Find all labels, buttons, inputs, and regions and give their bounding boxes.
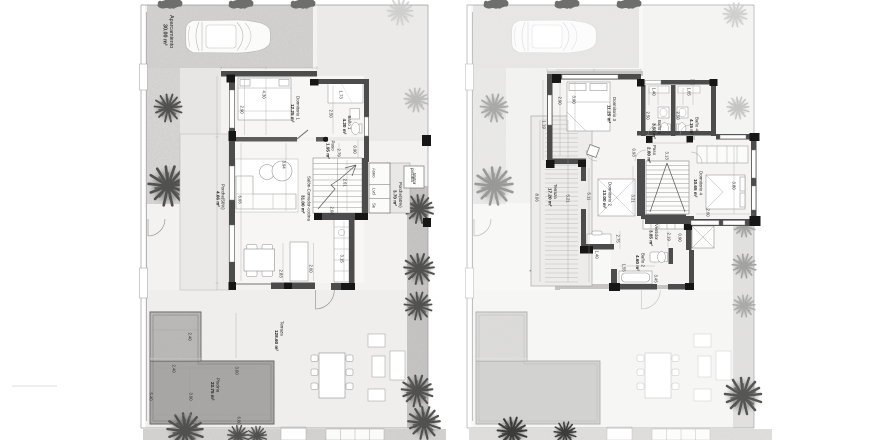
- svg-text:Baño 4: Baño 4: [695, 117, 700, 131]
- svg-text:0.90: 0.90: [352, 146, 357, 155]
- svg-text:2.50: 2.50: [645, 112, 650, 121]
- svg-text:Dormitorio 3: Dormitorio 3: [612, 97, 617, 121]
- svg-text:3.70 m²: 3.70 m²: [393, 190, 398, 206]
- svg-text:11.25 m²: 11.25 m²: [607, 105, 612, 124]
- svg-text:3.90: 3.90: [571, 96, 576, 105]
- svg-text:12.25 m²: 12.25 m²: [290, 104, 295, 123]
- svg-text:23.75 m²: 23.75 m²: [210, 382, 215, 401]
- svg-text:5.40: 5.40: [148, 393, 153, 402]
- svg-text:31.00 m²: 31.00 m²: [301, 195, 306, 214]
- svg-text:Se: Se: [372, 203, 377, 209]
- svg-text:30.00 m²: 30.00 m²: [162, 24, 168, 46]
- svg-text:3.94: 3.94: [281, 161, 286, 170]
- svg-text:2.40: 2.40: [187, 333, 192, 342]
- svg-text:4.60 m²: 4.60 m²: [635, 255, 640, 271]
- svg-text:6.66: 6.66: [237, 196, 242, 205]
- svg-text:4.66 m²: 4.66 m²: [216, 191, 221, 207]
- svg-text:Porche(50%): Porche(50%): [398, 182, 403, 208]
- svg-text:1.65: 1.65: [686, 88, 691, 97]
- svg-text:2.50: 2.50: [675, 112, 680, 121]
- svg-text:Dormitorio 1: Dormitorio 1: [296, 96, 301, 120]
- svg-text:3.50 m²: 3.50 m²: [652, 123, 657, 139]
- svg-text:3.80: 3.80: [731, 182, 736, 191]
- svg-text:Aseo: Aseo: [372, 168, 377, 178]
- svg-text:0.93: 0.93: [631, 149, 636, 158]
- svg-text:Aparcamiento: Aparcamiento: [168, 15, 174, 48]
- svg-text:2.90: 2.90: [239, 106, 244, 115]
- svg-text:2.60: 2.60: [308, 265, 313, 274]
- svg-text:2.08: 2.08: [329, 207, 334, 216]
- svg-text:2.90: 2.90: [557, 97, 562, 106]
- svg-text:3.13: 3.13: [664, 152, 669, 161]
- svg-text:4.15 m²: 4.15 m²: [689, 119, 694, 135]
- svg-text:3.15: 3.15: [339, 255, 344, 264]
- svg-text:0.90: 0.90: [677, 234, 682, 243]
- svg-text:3.85 m²: 3.85 m²: [649, 230, 654, 246]
- svg-text:Baño 3: Baño 3: [657, 120, 662, 134]
- svg-text:2.80 m²: 2.80 m²: [647, 147, 652, 163]
- svg-text:Terraza: Terraza: [553, 184, 558, 199]
- svg-text:3.00: 3.00: [234, 367, 239, 376]
- svg-text:Salón-Comedor-cocina: Salón-Comedor-cocina: [307, 176, 312, 221]
- svg-text:17.20 m²: 17.20 m²: [548, 188, 553, 207]
- svg-text:2.60: 2.60: [705, 209, 710, 218]
- svg-text:4.20 m²: 4.20 m²: [342, 119, 347, 135]
- svg-text:2.40: 2.40: [171, 365, 176, 374]
- svg-text:Lvd: Lvd: [372, 188, 377, 195]
- svg-text:8.06: 8.06: [534, 194, 539, 203]
- svg-text:4.30: 4.30: [261, 91, 266, 100]
- svg-text:1.55: 1.55: [621, 264, 626, 273]
- svg-text:Vestidor: Vestidor: [654, 224, 659, 240]
- svg-text:3.45: 3.45: [653, 275, 658, 284]
- svg-text:2.50: 2.50: [328, 110, 333, 119]
- svg-text:13.00 m²: 13.00 m²: [602, 190, 607, 209]
- svg-text:Terraza: Terraza: [280, 321, 285, 336]
- svg-text:1.95 m²: 1.95 m²: [326, 143, 331, 159]
- svg-text:Paso: Paso: [652, 145, 657, 156]
- svg-text:piscina: piscina: [410, 168, 415, 182]
- svg-text:Dormitorio 4: Dormitorio 4: [699, 171, 704, 195]
- svg-text:10.65 m²: 10.65 m²: [693, 179, 698, 198]
- svg-text:128.60 m²: 128.60 m²: [274, 330, 279, 351]
- svg-text:Piscina: Piscina: [216, 378, 221, 393]
- svg-text:2.75: 2.75: [615, 235, 620, 244]
- svg-text:1.19: 1.19: [541, 121, 546, 130]
- svg-text:5.21: 5.21: [565, 195, 570, 204]
- svg-text:1.40: 1.40: [594, 251, 599, 260]
- svg-text:2.19: 2.19: [666, 233, 671, 242]
- svg-text:Baño 2: Baño 2: [641, 253, 646, 267]
- svg-text:3.90: 3.90: [188, 393, 193, 402]
- svg-text:Dormitorio 2: Dormitorio 2: [608, 182, 613, 206]
- svg-text:5.11: 5.11: [586, 193, 591, 202]
- svg-text:6.00: 6.00: [236, 417, 241, 426]
- svg-text:1.40: 1.40: [651, 88, 656, 97]
- svg-text:2.79: 2.79: [336, 149, 341, 158]
- svg-text:2.61: 2.61: [342, 179, 347, 188]
- svg-text:2.83: 2.83: [278, 270, 283, 279]
- svg-text:3.21: 3.21: [630, 195, 635, 204]
- svg-text:1.73: 1.73: [338, 91, 343, 100]
